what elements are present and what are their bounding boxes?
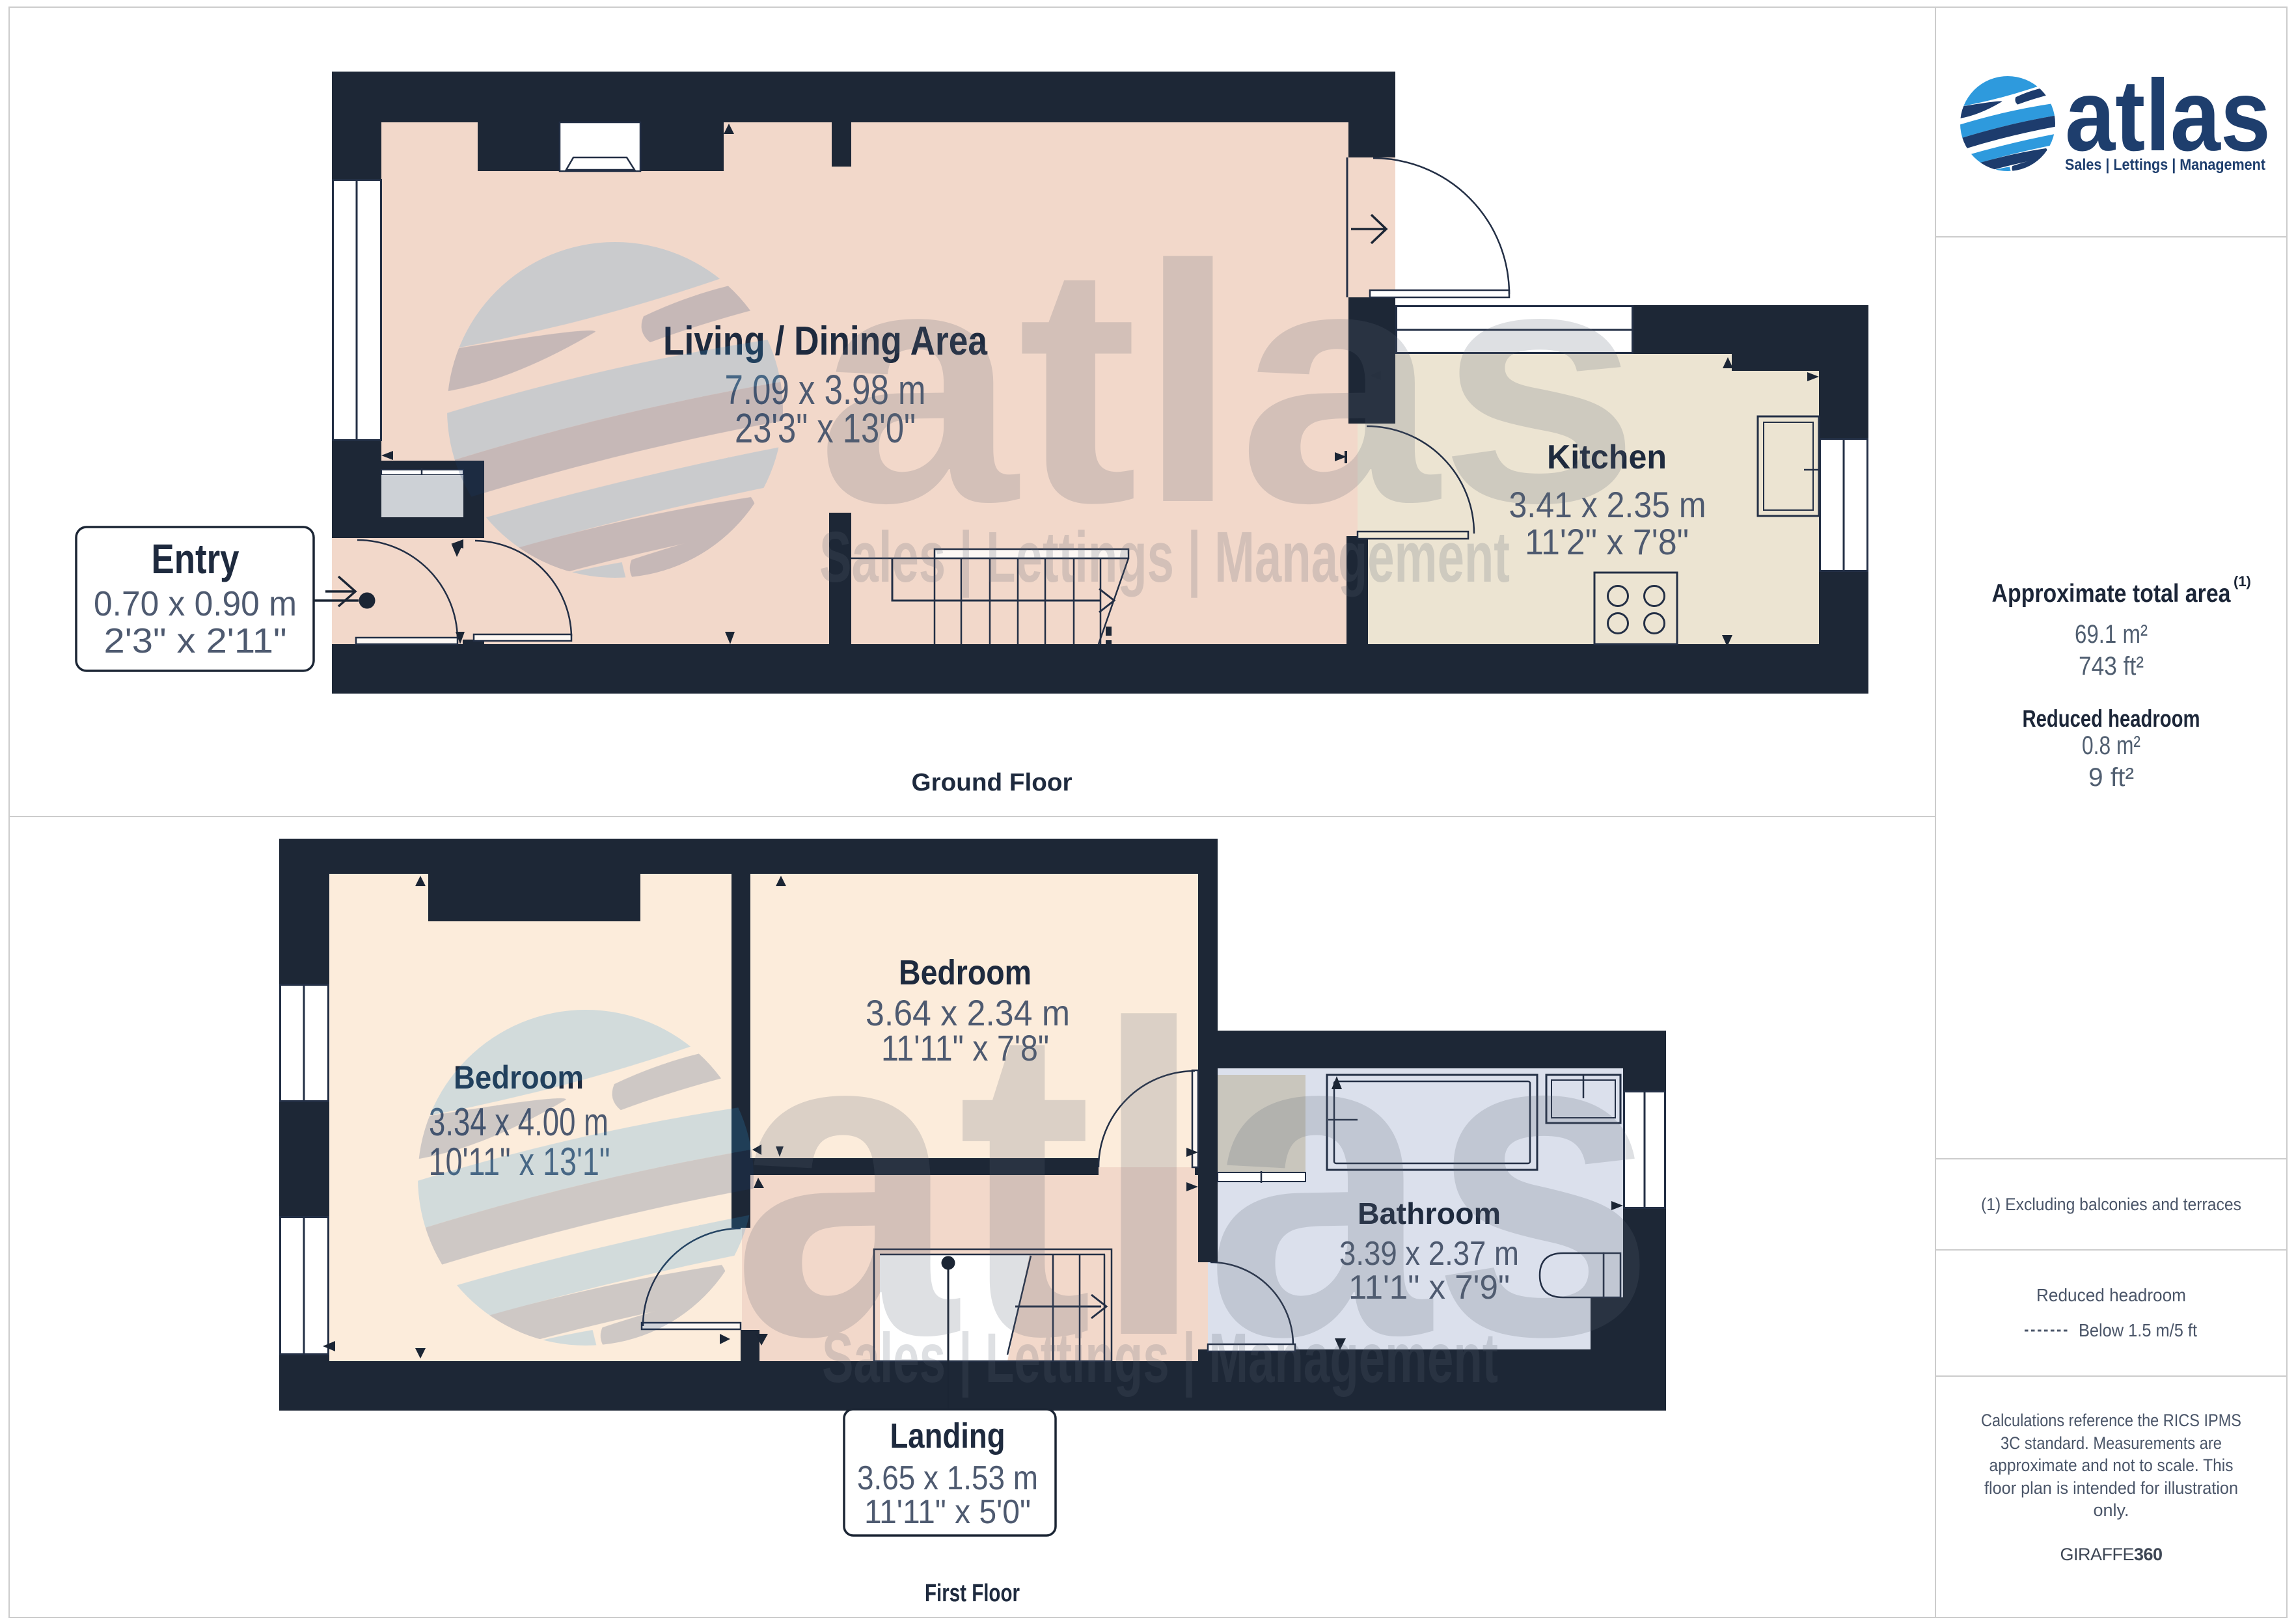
svg-text:atlas: atlas	[2065, 59, 2271, 172]
svg-text:69.1 m²: 69.1 m²	[2075, 620, 2148, 649]
svg-text:only.: only.	[2094, 1500, 2129, 1520]
svg-text:(1): (1)	[2234, 573, 2251, 589]
svg-text:(1) Excluding balconies and te: (1) Excluding balconies and terraces	[1981, 1195, 2241, 1214]
svg-text:Reduced headroom: Reduced headroom	[2036, 1285, 2186, 1305]
svg-text:floor plan is intended for ill: floor plan is intended for illustration	[1984, 1478, 2238, 1498]
svg-text:Sales | Lettings | Management: Sales | Lettings | Management	[2065, 156, 2265, 174]
svg-text:3C standard. Measurements are: 3C standard. Measurements are	[2001, 1433, 2222, 1453]
svg-text:Entry: Entry	[152, 535, 239, 582]
svg-text:0.8 m²: 0.8 m²	[2082, 731, 2140, 760]
svg-text:approximate and not to scale.: approximate and not to scale. This	[1989, 1455, 2234, 1475]
svg-text:Landing: Landing	[890, 1416, 1005, 1455]
svg-text:743 ft²: 743 ft²	[2079, 652, 2144, 681]
svg-text:11'11" x 5'0": 11'11" x 5'0"	[864, 1493, 1031, 1531]
svg-text:GIRAFFE360: GIRAFFE360	[2060, 1545, 2162, 1564]
svg-text:First Floor: First Floor	[925, 1580, 1020, 1607]
svg-text:Approximate total area: Approximate total area	[1992, 580, 2231, 608]
svg-text:0.70 x 0.90 m: 0.70 x 0.90 m	[94, 584, 297, 623]
svg-text:Reduced headroom: Reduced headroom	[2023, 705, 2200, 732]
svg-text:atlas: atlas	[817, 195, 1640, 573]
svg-text:Ground Floor: Ground Floor	[912, 769, 1073, 796]
svg-text:3.65 x 1.53 m: 3.65 x 1.53 m	[857, 1459, 1038, 1497]
svg-text:Below 1.5 m/5 ft: Below 1.5 m/5 ft	[2079, 1320, 2197, 1340]
svg-text:Sales | Lettings | Management: Sales | Lettings | Management	[822, 1318, 1498, 1398]
svg-text:2'3" x 2'11": 2'3" x 2'11"	[104, 621, 287, 660]
svg-text:9 ft²: 9 ft²	[2088, 763, 2134, 792]
svg-text:Sales | Lettings | Management: Sales | Lettings | Management	[819, 517, 1510, 598]
svg-text:Calculations reference the RIC: Calculations reference the RICS IPMS	[1981, 1411, 2241, 1430]
